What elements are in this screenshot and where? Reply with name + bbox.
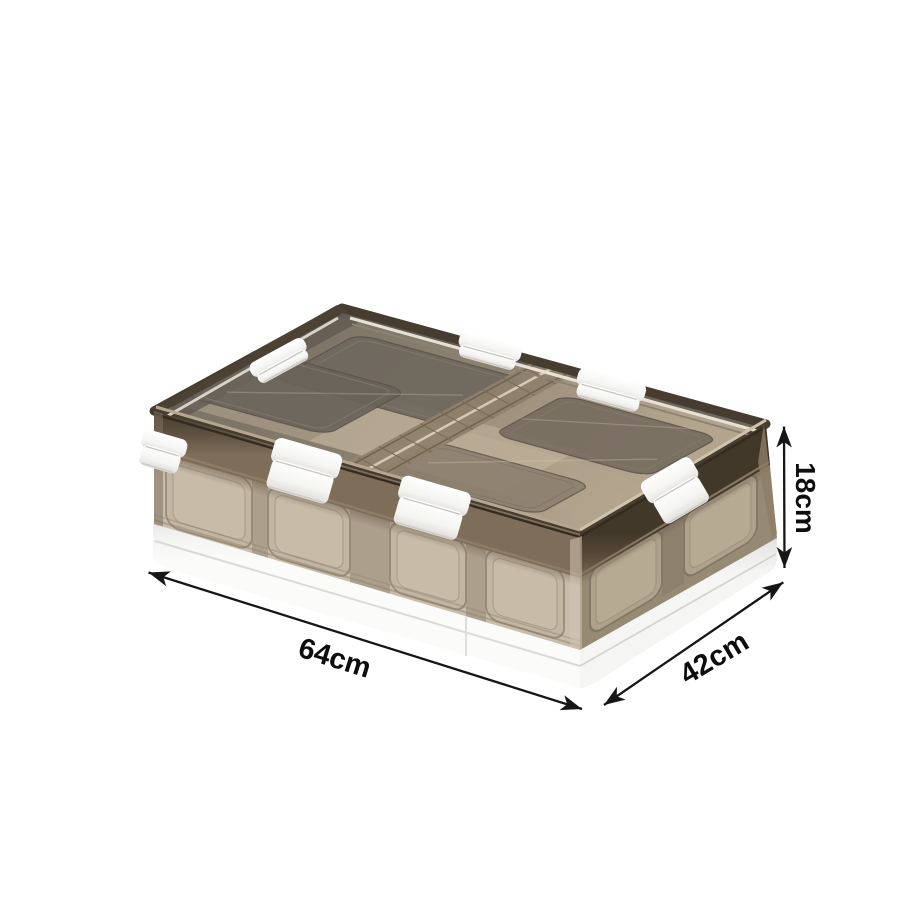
svg-text:18cm: 18cm (790, 462, 821, 534)
